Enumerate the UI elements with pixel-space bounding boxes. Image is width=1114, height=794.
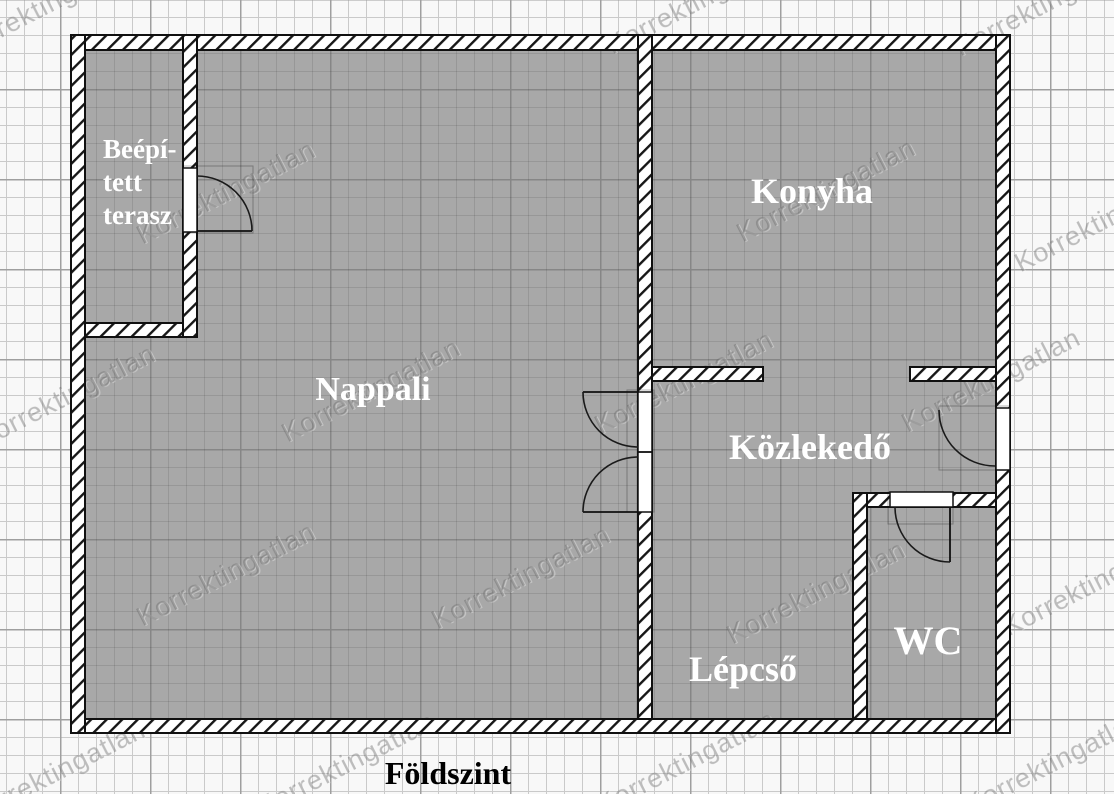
room-label-terasz-line2: tett: [103, 167, 142, 197]
wall-konyha-bottom-left: [652, 367, 763, 381]
door-opening: [183, 168, 197, 232]
wall-konyha-bottom-right: [910, 367, 996, 381]
room-label-kozlekedo: Közlekedő: [729, 427, 891, 467]
plan-title: Földszint: [385, 755, 512, 791]
wall-terasz-bottom: [85, 323, 183, 337]
floor-plan-page: Korrektingatlan Korrektingatlan Korrekti…: [0, 0, 1114, 794]
door-opening: [890, 492, 953, 507]
wall-exterior-bottom: [71, 719, 1010, 733]
room-label-konyha: Konyha: [751, 171, 873, 211]
room-label-lepcso: Lépcső: [689, 649, 797, 689]
room-label-terasz-line3: terasz: [103, 200, 172, 230]
wall-wc-left: [853, 493, 867, 719]
room-label-wc: WC: [894, 618, 963, 663]
wall-exterior-right: [996, 35, 1010, 733]
wall-exterior-left: [71, 35, 85, 733]
door-opening: [996, 408, 1010, 470]
wall-nappali-east: [638, 35, 652, 719]
room-label-nappali: Nappali: [315, 371, 430, 408]
room-label-terasz-line1: Beépí-: [103, 134, 177, 164]
floor-plan: Korrektingatlan Korrektingatlan Korrekti…: [0, 0, 1114, 794]
wall-exterior-top: [71, 35, 1010, 50]
